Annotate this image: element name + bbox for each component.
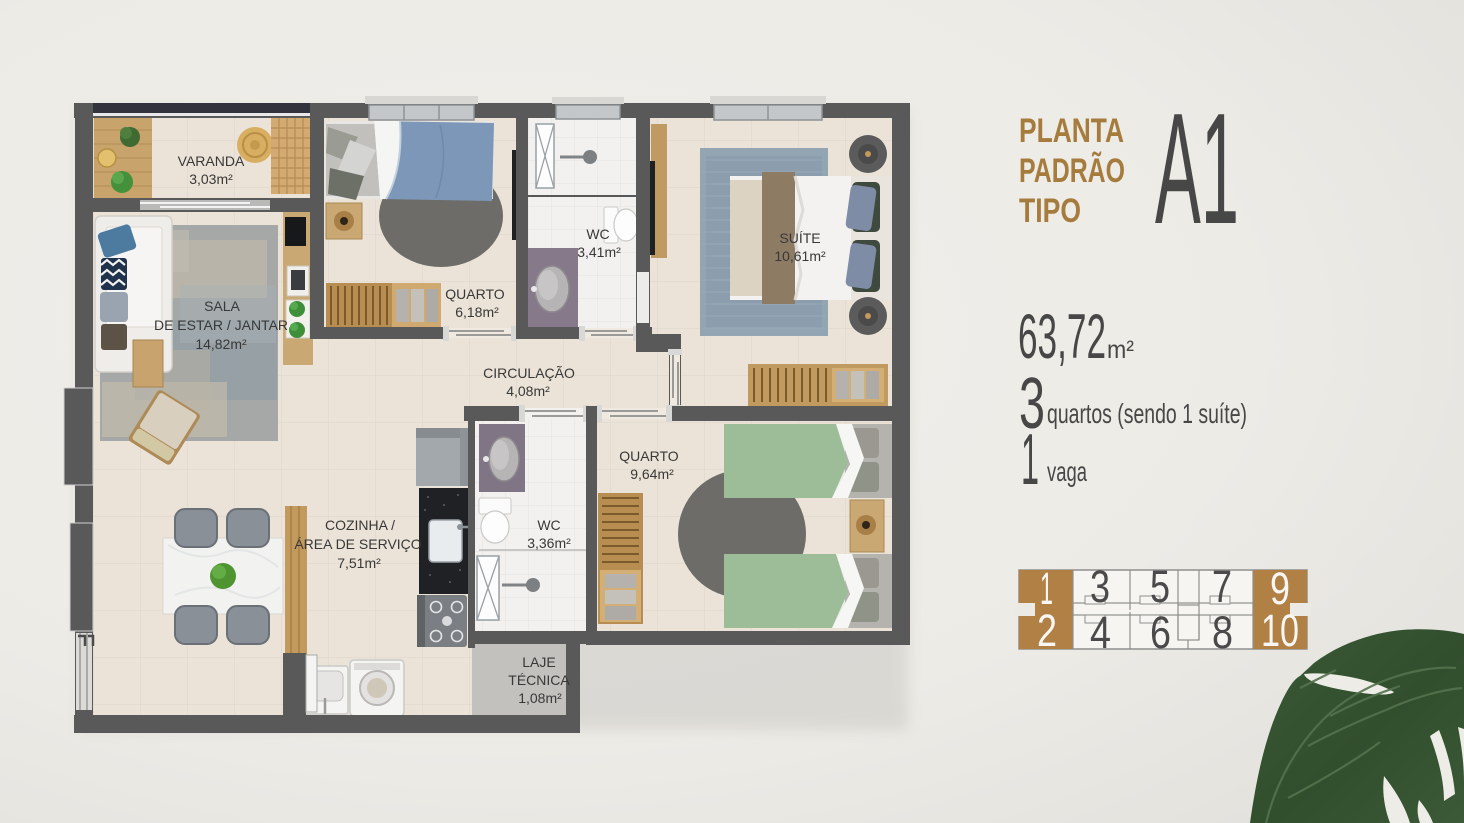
svg-text:7,51m²: 7,51m² — [337, 555, 381, 571]
svg-text:PADRÃO: PADRÃO — [1019, 152, 1125, 190]
svg-text:TIPO: TIPO — [1019, 192, 1081, 230]
svg-text:3,36m²: 3,36m² — [527, 535, 571, 551]
svg-text:COZINHA /: COZINHA / — [325, 517, 395, 533]
svg-text:14,82m²: 14,82m² — [195, 336, 247, 352]
svg-text:TÉCNICA: TÉCNICA — [508, 672, 570, 688]
svg-text:9,64m²: 9,64m² — [630, 466, 674, 482]
svg-text:5: 5 — [1150, 561, 1170, 612]
svg-text:WC: WC — [586, 226, 609, 242]
svg-text:6: 6 — [1150, 607, 1171, 658]
svg-text:A1: A1 — [1155, 81, 1239, 257]
svg-text:8: 8 — [1212, 607, 1233, 658]
svg-text:7: 7 — [1212, 561, 1232, 612]
svg-text:SUÍTE: SUÍTE — [779, 230, 820, 246]
svg-text:1,08m²: 1,08m² — [518, 690, 562, 706]
svg-text:10,61m²: 10,61m² — [774, 248, 826, 264]
svg-text:QUARTO: QUARTO — [619, 448, 678, 464]
svg-text:DE ESTAR / JANTAR: DE ESTAR / JANTAR — [154, 317, 288, 333]
svg-text:2: 2 — [1037, 605, 1057, 656]
svg-text:6,18m²: 6,18m² — [455, 304, 499, 320]
svg-text:ÁREA DE SERVIÇO: ÁREA DE SERVIÇO — [294, 536, 421, 552]
svg-text:1: 1 — [1021, 420, 1039, 500]
svg-text:63,72: 63,72 — [1018, 302, 1106, 372]
svg-text:QUARTO: QUARTO — [445, 286, 504, 302]
svg-text:CIRCULAÇÃO: CIRCULAÇÃO — [483, 365, 575, 381]
svg-text:PLANTA: PLANTA — [1019, 112, 1124, 150]
svg-text:SALA: SALA — [204, 298, 240, 314]
svg-text:vaga: vaga — [1047, 456, 1087, 487]
svg-text:3,41m²: 3,41m² — [577, 244, 621, 260]
svg-text:4,08m²: 4,08m² — [506, 383, 550, 399]
svg-text:LAJE: LAJE — [522, 654, 555, 670]
svg-text:4: 4 — [1090, 607, 1111, 658]
svg-text:10: 10 — [1261, 605, 1299, 656]
svg-text:VARANDA: VARANDA — [178, 153, 245, 169]
svg-text:3: 3 — [1090, 561, 1110, 612]
svg-text:WC: WC — [537, 517, 560, 533]
svg-text:3,03m²: 3,03m² — [189, 171, 233, 187]
svg-text:m²: m² — [1107, 336, 1134, 364]
svg-text:quartos (sendo 1 suíte): quartos (sendo 1 suíte) — [1047, 398, 1247, 429]
